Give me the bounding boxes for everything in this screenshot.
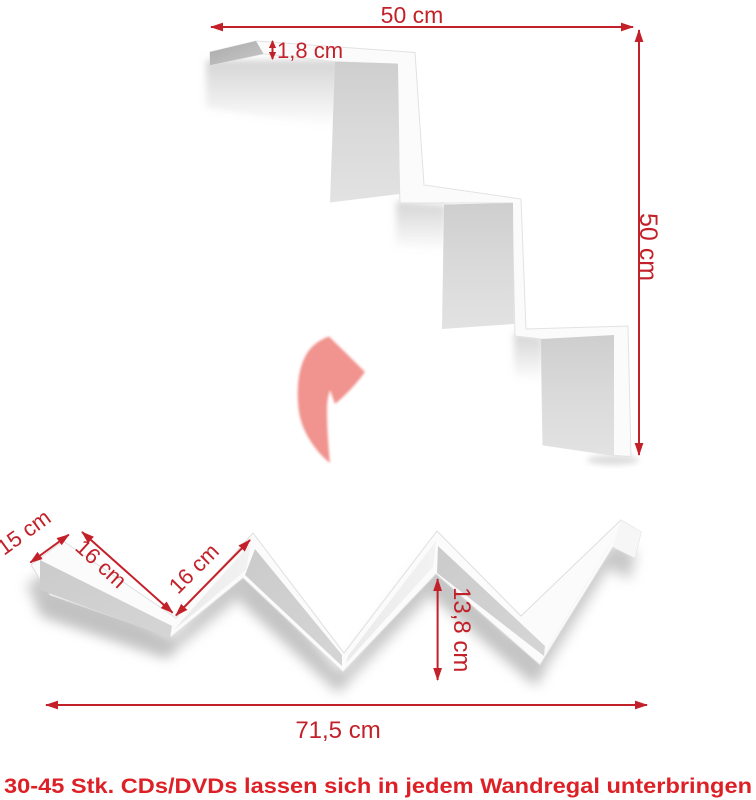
svg-text:1,8 cm: 1,8 cm — [277, 38, 343, 63]
svg-text:13,8 cm: 13,8 cm — [448, 587, 475, 672]
svg-text:71,5 cm: 71,5 cm — [295, 717, 380, 744]
svg-text:50 cm: 50 cm — [381, 2, 444, 28]
svg-text:50 cm: 50 cm — [634, 213, 662, 281]
svg-text:30-45 Stk. CDs/DVDs lassen sic: 30-45 Stk. CDs/DVDs lassen sich in jedem… — [4, 775, 752, 798]
